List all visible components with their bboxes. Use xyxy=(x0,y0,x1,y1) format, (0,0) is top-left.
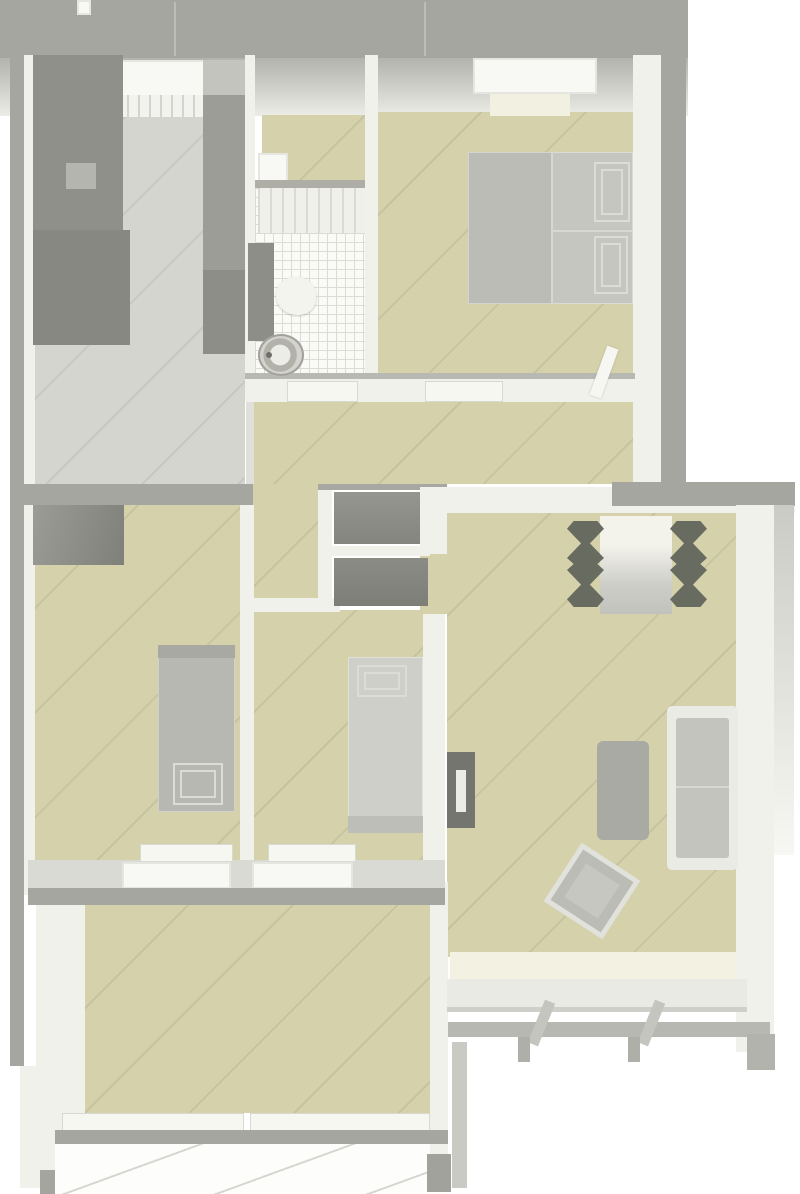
closet-mid-wall xyxy=(322,546,430,556)
top-exterior-wall xyxy=(0,0,688,58)
childroom-window-frame xyxy=(252,862,353,889)
bottom-beam xyxy=(55,1130,448,1144)
bathroom-shower-zone xyxy=(258,188,365,233)
top-wall-notch xyxy=(77,0,91,15)
bath-bedroom-wall xyxy=(365,55,378,373)
sofa-seat xyxy=(676,718,729,858)
bay-corner-foot xyxy=(747,1034,775,1070)
right-exterior-wall xyxy=(661,44,686,488)
dining-table xyxy=(600,516,672,614)
bottomroom-wall-foot xyxy=(427,1154,451,1192)
kitchen-cabinet-right-top xyxy=(203,60,245,95)
single-bed-center-quilt xyxy=(357,665,407,697)
hallway-floor xyxy=(253,402,633,484)
bottomroom-floor xyxy=(85,905,430,1113)
balcony-tile-floor xyxy=(55,1143,448,1194)
kitchen-cabinet-left xyxy=(33,55,123,230)
bedroom-window xyxy=(473,58,597,94)
kitchen-south-beam xyxy=(10,484,253,505)
livingroom-left-wall xyxy=(420,487,447,554)
kitchen-cabinet-handle xyxy=(66,163,96,189)
livingroom-radiator-handle xyxy=(456,770,466,812)
floorplan-scene xyxy=(0,0,800,1194)
bay-foot-left xyxy=(518,1037,530,1062)
double-bed-seam-h xyxy=(552,230,633,232)
bottomroom-livingroom-wall xyxy=(430,882,448,1154)
kitchen-bath-wall xyxy=(245,55,255,395)
left-exterior-wall xyxy=(10,44,24,1066)
anteroom-wall-line xyxy=(245,180,365,188)
bathroom-toilet xyxy=(258,334,304,376)
window-bench-edge xyxy=(447,1007,747,1012)
bathroom-basin xyxy=(276,277,316,315)
bay-foot-right xyxy=(628,1037,640,1062)
bedroomleft-childroom-wall xyxy=(240,505,254,862)
closet-shelf-upper xyxy=(334,492,428,544)
bay-window-bar xyxy=(448,1022,770,1037)
double-bed-quilt-upper xyxy=(594,162,630,222)
closet-shelf-lower xyxy=(334,558,428,606)
kitchen-radiator xyxy=(116,95,204,117)
kitchen-hall-threshold xyxy=(246,395,254,484)
kitchen-counter-left xyxy=(33,230,130,345)
window-bench-top xyxy=(450,952,736,979)
bedroom-door-sill xyxy=(425,381,503,402)
livingroom-top-wall-edge xyxy=(612,482,795,506)
kitchen-window xyxy=(108,60,208,100)
double-bed-seam xyxy=(551,152,553,304)
livingroom-bay-strip xyxy=(452,1042,467,1188)
childroom-window-sill xyxy=(268,844,356,862)
single-bed-center-foot xyxy=(348,816,423,833)
single-bed-left-head xyxy=(158,645,235,658)
anteroom-fixture xyxy=(258,153,288,182)
double-bed-left xyxy=(468,152,552,304)
single-bed-left-quilt xyxy=(173,763,223,805)
childroom-livingroom-wall xyxy=(423,614,445,882)
sofa-seat-seam xyxy=(676,786,729,788)
bedroomleft-window-frame xyxy=(122,862,231,889)
kitchen-cabinet-right-lower xyxy=(203,270,245,354)
kitchen-cabinet-right xyxy=(203,95,245,270)
hallway-floor-left xyxy=(253,484,320,610)
livingroom-right-outer xyxy=(774,505,794,855)
loggia-band xyxy=(28,860,445,890)
loggia-beam xyxy=(28,888,445,905)
coffee-table xyxy=(597,741,649,840)
top-wall-seam-a xyxy=(174,2,176,56)
top-wall-seam-b xyxy=(424,2,426,56)
window-bench-front xyxy=(447,979,747,1009)
bedroomleft-window-sill xyxy=(140,844,233,862)
double-bed-quilt-lower xyxy=(594,236,628,294)
bathroom-door-sill xyxy=(287,381,358,402)
bedroom-window-sill xyxy=(490,94,570,116)
bedroomleft-wardrobe xyxy=(33,505,124,565)
livingroom-right-wall xyxy=(736,505,774,1052)
bathroom-cabinet xyxy=(248,243,274,341)
right-interior-wall xyxy=(633,55,661,488)
